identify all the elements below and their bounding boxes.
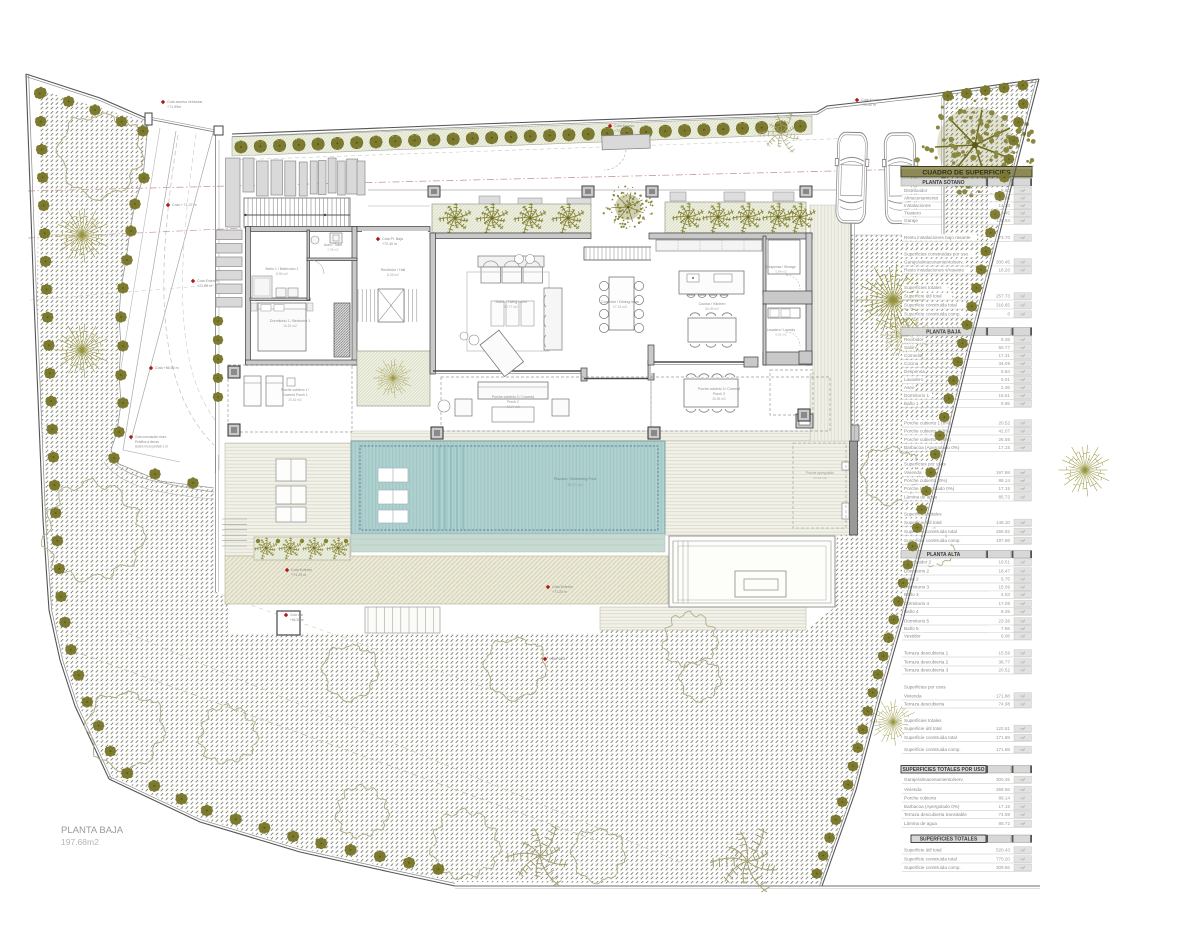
svg-text:Cota Vial: Cota Vial [290, 613, 303, 617]
svg-text:+72.40 m: +72.40 m [382, 242, 397, 246]
svg-text:Barbacoa (Apergolado 0%): Barbacoa (Apergolado 0%) [904, 804, 960, 809]
svg-text:Terraza descubierta 3: Terraza descubierta 3 [904, 668, 949, 673]
svg-text:Despensa: Despensa [904, 369, 925, 374]
svg-text:73.70: 73.70 [999, 235, 1011, 240]
svg-text:42.07 m2: 42.07 m2 [506, 405, 520, 409]
svg-text:17.15: 17.15 [999, 804, 1011, 809]
svg-text:m²: m² [1020, 848, 1025, 853]
svg-text:Superficie útil total: Superficie útil total [904, 848, 942, 853]
svg-text:PLANTA ALTA: PLANTA ALTA [927, 552, 961, 558]
svg-text:Resto instalaciones bajo rasan: Resto instalaciones bajo rasante [904, 235, 971, 240]
svg-text:m²: m² [1020, 268, 1025, 273]
svg-text:m²: m² [1020, 726, 1025, 731]
svg-text:5.01 m2: 5.01 m2 [775, 333, 786, 337]
svg-text:8.28 m2: 8.28 m2 [387, 273, 399, 277]
svg-text:m²: m² [1020, 385, 1025, 390]
svg-text:Almacenamiento: Almacenamiento [904, 196, 939, 201]
svg-text:Terraza descubierta: Terraza descubierta [904, 702, 945, 707]
svg-text:m²: m² [1020, 235, 1025, 240]
svg-text:m²: m² [1020, 634, 1025, 639]
svg-text:Superficie construida comp.: Superficie construida comp. [904, 312, 961, 317]
svg-text:5.01: 5.01 [1001, 377, 1010, 382]
svg-text:+66.30 m: +66.30 m [290, 618, 304, 622]
svg-text:Cocina: Cocina [904, 361, 919, 366]
svg-text:Baño 1 / Bathroom 1: Baño 1 / Bathroom 1 [266, 267, 299, 271]
svg-text:m²: m² [1020, 812, 1025, 817]
svg-text:PLANTA BAJA: PLANTA BAJA [926, 329, 961, 335]
svg-text:Terraza descubierta 1: Terraza descubierta 1 [904, 651, 949, 656]
svg-text:m²: m² [1020, 585, 1025, 590]
svg-text:34.09 m2: 34.09 m2 [705, 307, 719, 311]
svg-text:m²: m² [1020, 601, 1025, 606]
svg-text:m²: m² [1020, 353, 1025, 358]
svg-text:m²: m² [1020, 529, 1025, 534]
svg-text:m²: m² [1020, 312, 1025, 317]
svg-text:17.15: 17.15 [999, 486, 1011, 491]
svg-text:Despensa / Storage: Despensa / Storage [766, 265, 795, 269]
svg-text:Garaje: Garaje [904, 218, 918, 223]
svg-text:Cota Exterior: Cota Exterior [197, 279, 219, 283]
svg-text:Lámina de agua: Lámina de agua [904, 821, 937, 826]
svg-text:Cota Acceso: Cota Acceso [861, 98, 881, 102]
svg-text:Superficies por usos: Superficies por usos [904, 685, 946, 690]
svg-text:m²: m² [1020, 345, 1025, 350]
svg-text:m²: m² [1020, 393, 1025, 398]
svg-text:Cota Acceso: Cota Acceso [614, 124, 634, 128]
svg-text:266.82: 266.82 [996, 529, 1010, 534]
svg-text:5.84 m2: 5.84 m2 [775, 270, 786, 274]
svg-text:85.72: 85.72 [999, 821, 1011, 826]
svg-text:Distribuidor: Distribuidor [904, 188, 928, 193]
svg-text:50.77 m2: 50.77 m2 [504, 305, 518, 309]
svg-text:Cocina / Kitchen: Cocina / Kitchen [699, 302, 726, 306]
svg-text:CUADRO DE SUPERFICIES: CUADRO DE SUPERFICIES [922, 170, 1011, 177]
svg-text:Superficie construida total: Superficie construida total [904, 529, 957, 534]
svg-text:PLANTA BAJA: PLANTA BAJA [61, 825, 124, 836]
svg-text:19.51: 19.51 [999, 560, 1011, 565]
svg-text:m²: m² [1020, 337, 1025, 342]
svg-text:m²: m² [1020, 361, 1025, 366]
svg-text:m²: m² [1020, 211, 1025, 216]
svg-text:m²: m² [1020, 577, 1025, 582]
svg-text:m²: m² [1020, 421, 1025, 426]
svg-text:m²: m² [1020, 787, 1025, 792]
svg-text:197.68: 197.68 [996, 538, 1010, 543]
svg-text:Sobre muro prefab 1 m: Sobre muro prefab 1 m [135, 444, 168, 448]
svg-text:Porche apergolado: Porche apergolado [806, 471, 834, 475]
svg-text:316.65: 316.65 [996, 303, 1010, 308]
svg-text:Cota Exterior: Cota Exterior [291, 568, 313, 572]
svg-text:17.08: 17.08 [999, 601, 1011, 606]
svg-text:17.15: 17.15 [999, 445, 1011, 450]
svg-text:Salón: Salón [904, 345, 916, 350]
svg-text:Vestidor: Vestidor [904, 634, 921, 639]
svg-text:122.61: 122.61 [996, 726, 1010, 731]
svg-text:Terraza descubierta 2: Terraza descubierta 2 [904, 660, 949, 665]
svg-text:34.09: 34.09 [999, 361, 1011, 366]
svg-text:m²: m² [1020, 429, 1025, 434]
svg-text:Superficie construida total: Superficie construida total [904, 857, 957, 862]
svg-text:Garaje/almacenamiento/serv.: Garaje/almacenamiento/serv. [904, 777, 964, 782]
svg-text:8.29: 8.29 [1001, 609, 1010, 614]
svg-text:m²: m² [1020, 445, 1025, 450]
svg-text:7.56: 7.56 [1001, 626, 1010, 631]
svg-text:85.72: 85.72 [999, 495, 1011, 500]
svg-text:m²: m² [1020, 592, 1025, 597]
svg-text:89.14: 89.14 [999, 478, 1011, 483]
svg-text:Superficie construida comp.: Superficie construida comp. [904, 747, 961, 752]
svg-text:Porche cubierto: Porche cubierto [904, 796, 937, 801]
svg-text:m²: m² [1020, 619, 1025, 624]
svg-text:m²: m² [1020, 857, 1025, 862]
svg-text:15.09: 15.09 [999, 585, 1011, 590]
svg-text:m²: m² [1020, 495, 1025, 500]
svg-text:m²: m² [1020, 626, 1025, 631]
svg-text:149.10: 149.10 [996, 520, 1010, 525]
svg-text:m²: m² [1020, 668, 1025, 673]
svg-text:Vivienda: Vivienda [904, 787, 922, 792]
svg-text:Barbacoa (Apergolado 0%): Barbacoa (Apergolado 0%) [904, 445, 960, 450]
svg-text:26.55: 26.55 [999, 437, 1011, 442]
svg-text:4.03: 4.03 [1001, 592, 1010, 597]
svg-text:8.28: 8.28 [1001, 337, 1010, 342]
svg-text:m²: m² [1020, 735, 1025, 740]
svg-text:20.52: 20.52 [999, 668, 1011, 673]
svg-text:Terraza descubierta transitabl: Terraza descubierta transitable [904, 812, 967, 817]
svg-text:8.95: 8.95 [1001, 401, 1010, 406]
svg-text:m²: m² [1020, 303, 1025, 308]
svg-text:PLANTA SÓTANO: PLANTA SÓTANO [922, 178, 964, 186]
svg-text:SUPERFICIES TOTALES POR USO: SUPERFICIES TOTALES POR USO [902, 767, 984, 773]
svg-text:m²: m² [1020, 478, 1025, 483]
svg-text:2.36 m2: 2.36 m2 [327, 248, 338, 252]
svg-text:770.20: 770.20 [996, 857, 1010, 862]
svg-text:Peldños a tierras: Peldños a tierras [135, 440, 159, 444]
svg-text:26.55 m2: 26.55 m2 [712, 397, 726, 401]
svg-text:Vivienda: Vivienda [904, 470, 922, 475]
svg-text:309.56: 309.56 [996, 865, 1010, 870]
svg-text:Baño 1: Baño 1 [904, 401, 919, 406]
svg-text:Porche cubierto 2 / Covered: Porche cubierto 2 / Covered [492, 395, 534, 399]
svg-text:m²: m² [1020, 188, 1025, 193]
svg-text:Superficie útil total: Superficie útil total [904, 726, 942, 731]
svg-text:Cota + 71.37 m: Cota + 71.37 m [172, 203, 197, 207]
svg-text:m²: m² [1020, 196, 1025, 201]
svg-text:369.56: 369.56 [996, 787, 1010, 792]
svg-text:m²: m² [1020, 437, 1025, 442]
svg-text:Instalaciones: Instalaciones [904, 203, 932, 208]
svg-text:m²: m² [1020, 260, 1025, 265]
svg-text:Comedor / Dining room: Comedor / Dining room [601, 300, 639, 304]
svg-text:Lámina de agua: Lámina de agua [904, 495, 937, 500]
svg-text:18.47: 18.47 [999, 569, 1011, 574]
svg-text:171.88: 171.88 [996, 735, 1010, 740]
svg-text:m²: m² [1020, 804, 1025, 809]
svg-text:Cota Pl. Baja: Cota Pl. Baja [382, 237, 403, 241]
svg-text:m²: m² [1020, 470, 1025, 475]
svg-text:+72.30 m: +72.30 m [614, 129, 629, 133]
svg-text:171.88: 171.88 [996, 694, 1010, 699]
svg-text:Cota acceso vehicular: Cota acceso vehicular [167, 100, 203, 104]
svg-text:5.84: 5.84 [1001, 369, 1010, 374]
svg-text:Cota Exterior: Cota Exterior [552, 585, 574, 589]
svg-text:+72.40 m: +72.40 m [861, 103, 876, 107]
svg-text:Superficies construidas por us: Superficies construidas por uso [904, 252, 969, 257]
svg-text:8.95 m2: 8.95 m2 [276, 272, 288, 276]
svg-text:Lavadero / Laundry: Lavadero / Laundry [767, 328, 796, 332]
svg-text:+71.99m: +71.99m [167, 105, 181, 109]
svg-text:Aseo / Toilet: Aseo / Toilet [324, 243, 342, 247]
svg-text:m²: m² [1020, 569, 1025, 574]
svg-text:Recibidor / Hall: Recibidor / Hall [381, 268, 406, 272]
svg-text:17.31 m2: 17.31 m2 [613, 305, 627, 309]
svg-text:171.88: 171.88 [996, 747, 1010, 752]
svg-text:Dormitorio 5: Dormitorio 5 [904, 619, 929, 624]
svg-text:16.20: 16.20 [999, 268, 1011, 273]
svg-text:m²: m² [1020, 865, 1025, 870]
svg-text:17.31: 17.31 [999, 353, 1011, 358]
svg-text:m²: m² [1020, 294, 1025, 299]
svg-text:Superficie útil total: Superficie útil total [904, 520, 942, 525]
svg-text:74.98: 74.98 [999, 812, 1011, 817]
svg-text:Baño 4: Baño 4 [904, 609, 919, 614]
svg-text:Superficies totales: Superficies totales [904, 285, 942, 290]
svg-text:Recibidor: Recibidor [904, 337, 924, 342]
svg-text:Dormitorio 1 / Bedroom 1: Dormitorio 1 / Bedroom 1 [270, 319, 310, 323]
svg-text:257.73: 257.73 [996, 294, 1010, 299]
svg-text:m²: m² [1020, 377, 1025, 382]
svg-text:Cota coronación muro: Cota coronación muro [135, 435, 167, 439]
svg-text:m²: m² [1020, 218, 1025, 223]
svg-text:Porch 2: Porch 2 [507, 400, 519, 404]
svg-text:Dormitorio 3: Dormitorio 3 [904, 585, 929, 590]
svg-text:Covered Porch 1: Covered Porch 1 [282, 393, 308, 397]
svg-text:+71.00 m: +71.00 m [197, 284, 212, 288]
svg-text:16.51: 16.51 [999, 393, 1011, 398]
svg-text:16.51 m2: 16.51 m2 [283, 324, 297, 328]
svg-text:m²: m² [1020, 369, 1025, 374]
svg-text:m²: m² [1020, 660, 1025, 665]
svg-text:Porche cubierto (0%): Porche cubierto (0%) [904, 478, 948, 483]
svg-text:m²: m² [1020, 560, 1025, 565]
svg-text:Garaje/almacenamiento/serv.: Garaje/almacenamiento/serv. [904, 260, 964, 265]
svg-text:Vivienda: Vivienda [904, 694, 922, 699]
svg-text:SUPERFICIES TOTALES: SUPERFICIES TOTALES [920, 837, 978, 843]
svg-text:20.52: 20.52 [999, 421, 1011, 426]
svg-text:520.43: 520.43 [996, 848, 1010, 853]
svg-text:15.59: 15.59 [999, 651, 1011, 656]
svg-text:m²: m² [1020, 702, 1025, 707]
svg-text:89.14: 89.14 [999, 796, 1011, 801]
svg-text:Resto instalaciones s/rasante: Resto instalaciones s/rasante [904, 268, 964, 273]
svg-text:Piscina / Swimming Pool: Piscina / Swimming Pool [554, 476, 597, 481]
svg-text:+71.20 m: +71.20 m [552, 590, 567, 594]
svg-text:Baño 5: Baño 5 [904, 626, 919, 631]
svg-text:Comedor: Comedor [904, 353, 923, 358]
svg-text:m²: m² [1020, 694, 1025, 699]
svg-text:m²: m² [1020, 203, 1025, 208]
svg-text:23.36: 23.36 [999, 619, 1011, 624]
svg-text:m²: m² [1020, 401, 1025, 406]
svg-text:+ 66 / 66.5: + 66 / 66.5 [549, 657, 565, 661]
svg-text:Superficie construida total: Superficie construida total [904, 303, 957, 308]
svg-text:42.07: 42.07 [999, 429, 1011, 434]
svg-text:Porche cubierto 3 / Covered: Porche cubierto 3 / Covered [698, 387, 740, 391]
svg-text:2.36: 2.36 [1001, 385, 1010, 390]
svg-text:Aseo: Aseo [904, 385, 915, 390]
svg-text:m²: m² [1020, 486, 1025, 491]
svg-text:300.45: 300.45 [996, 260, 1010, 265]
svg-text:Salón / Living room: Salón / Living room [495, 300, 527, 304]
svg-text:20.52 m2: 20.52 m2 [288, 398, 302, 402]
svg-text:300.45: 300.45 [996, 777, 1010, 782]
svg-text:0: 0 [1007, 312, 1010, 317]
svg-text:197.68: 197.68 [996, 470, 1010, 475]
svg-text:Superficie útil total: Superficie útil total [904, 294, 942, 299]
svg-text:5.75: 5.75 [1001, 577, 1010, 582]
svg-text:6.08: 6.08 [1001, 634, 1010, 639]
svg-text:m²: m² [1020, 796, 1025, 801]
svg-text:Lavadero: Lavadero [904, 377, 924, 382]
svg-text:Cota +66.50 m: Cota +66.50 m [155, 366, 179, 370]
svg-text:m²: m² [1020, 777, 1025, 782]
svg-text:50.77: 50.77 [999, 345, 1011, 350]
svg-text:197.68m2: 197.68m2 [61, 837, 99, 847]
svg-text:Superficie construida total: Superficie construida total [904, 735, 957, 740]
svg-text:m²: m² [1020, 520, 1025, 525]
svg-text:38.77: 38.77 [999, 660, 1011, 665]
svg-text:Dormitorio 1: Dormitorio 1 [904, 393, 929, 398]
svg-text:17.15 m2: 17.15 m2 [814, 476, 827, 480]
svg-text:m²: m² [1020, 609, 1025, 614]
svg-text:m²: m² [1020, 821, 1025, 826]
svg-text:+71.20 m: +71.20 m [291, 573, 306, 577]
svg-text:74.98: 74.98 [999, 702, 1011, 707]
svg-text:Porch 3: Porch 3 [713, 392, 725, 396]
svg-text:85.72 m2: 85.72 m2 [568, 483, 583, 487]
svg-text:m²: m² [1020, 651, 1025, 656]
svg-text:m²: m² [1020, 747, 1025, 752]
svg-text:Trastero: Trastero [904, 211, 921, 216]
svg-text:m²: m² [1020, 538, 1025, 543]
svg-text:Superficies totales: Superficies totales [904, 718, 942, 723]
svg-text:Porche cubierto 3 (0%): Porche cubierto 3 (0%) [904, 437, 951, 442]
svg-text:Superficie construida comp.: Superficie construida comp. [904, 865, 961, 870]
svg-text:Porche cubierto 1 /: Porche cubierto 1 / [281, 388, 310, 392]
